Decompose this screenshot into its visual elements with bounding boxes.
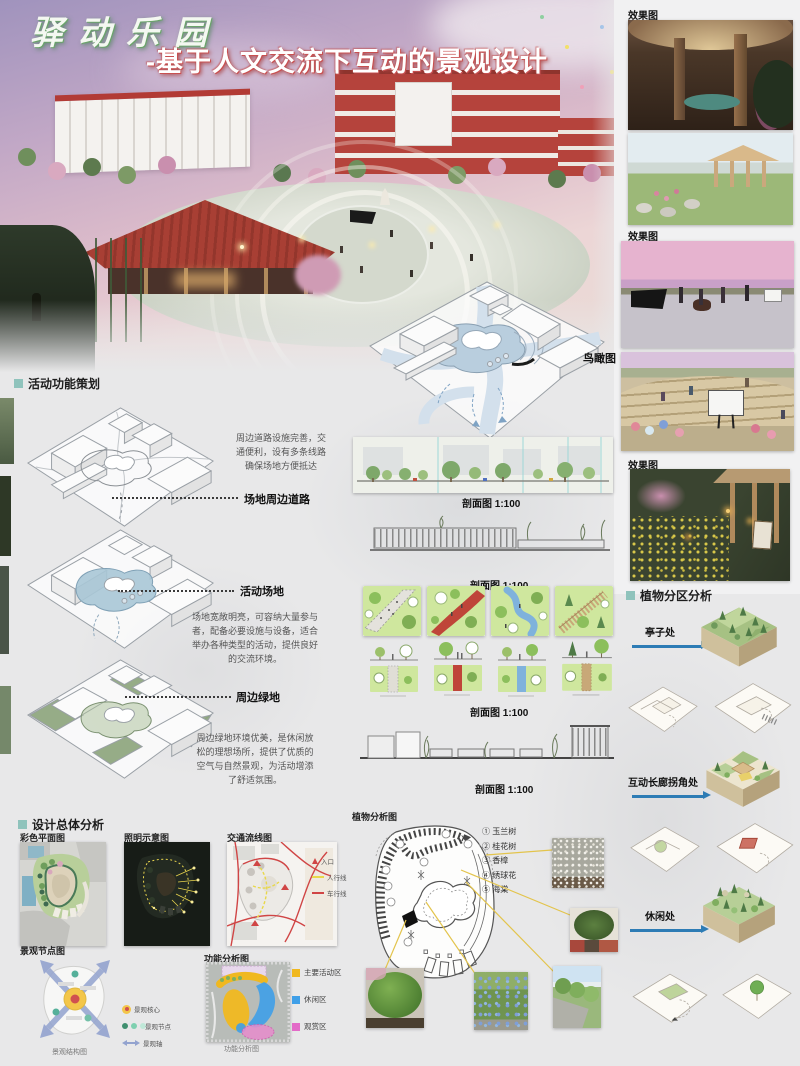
blossom-tree	[295, 255, 341, 295]
confetti-dots	[540, 15, 544, 19]
path-panel-stream	[491, 586, 549, 636]
photo-osmanthus-tree	[570, 908, 618, 952]
lamp-lights	[240, 245, 244, 249]
tree-row	[18, 148, 36, 166]
planting-detail-pair	[494, 640, 550, 700]
plant-list-item: ① 玉兰树	[482, 826, 516, 838]
building-tower-white	[395, 82, 452, 146]
terrain-model-pavilion-area	[698, 604, 780, 670]
arrow-icon	[630, 929, 702, 932]
street-trees	[555, 978, 571, 994]
planting-detail-pair	[558, 636, 616, 700]
function-legend-row: 休闲区	[292, 994, 342, 1005]
function-legend: 主要活动区 休闲区 观赏区	[292, 967, 342, 1032]
zone-label-leisure: 休闲处	[645, 908, 675, 923]
photo-magnolia-trees	[552, 838, 604, 888]
path-panel-stone	[363, 586, 421, 636]
pavilion-glow	[175, 272, 235, 288]
render-photo-amphitheater	[621, 352, 794, 451]
sitting-people	[661, 392, 665, 401]
arrow-icon	[632, 645, 702, 648]
node-map-caption: 景观结构图	[52, 1047, 87, 1057]
axon-diagram-green-space	[22, 652, 219, 786]
activity-heading: 活动功能策划	[14, 375, 100, 392]
activity-desc-3: 周边绿地环境优美，是休闲放松的理想场所，提供了优质的空气与自然景观，为活动增添了…	[195, 732, 315, 788]
render-photo-night-pavilion	[628, 20, 793, 130]
birdseye-label: 鸟瞰图	[583, 350, 616, 366]
render-photo-evening-garden	[630, 469, 790, 581]
path-panel-red-track	[427, 586, 485, 636]
plant-list-item: ② 桂花树	[482, 841, 516, 853]
plant-list: ① 玉兰树 ② 桂花树 ③ 香樟 ④ 绣球花 ⑤ 海棠	[482, 826, 516, 896]
activity-label-2: 活动场地	[240, 583, 284, 599]
yellow-flower-field	[630, 516, 729, 581]
function-map-caption: 功能分析图	[224, 1044, 259, 1054]
function-legend-row: 观赏区	[292, 1021, 342, 1032]
activity-zone-swatch-icon	[292, 969, 300, 977]
traffic-legend-row: 车行线	[312, 888, 347, 898]
landscape-node-diagram	[26, 954, 126, 1046]
render-photo-day-pavilion	[628, 133, 793, 225]
plant-zone-heading-label: 植物分区分析	[640, 587, 712, 604]
flower-dots	[654, 191, 659, 196]
lighting-plan	[124, 842, 210, 946]
function-analysis-map	[206, 962, 290, 1042]
pedestrian-line-icon	[312, 876, 324, 878]
garden-stones	[636, 203, 652, 213]
activity-label-3: 周边绿地	[236, 689, 280, 705]
blossom-patch	[636, 479, 686, 513]
node-legend: 景观核心 景观节点 景观轴	[122, 1004, 171, 1048]
line-section-buildings	[358, 718, 616, 766]
section-label-3: 剖面图 1:100	[470, 704, 528, 719]
pavilion-column	[674, 38, 685, 120]
zone-label-corridor: 互动长廊拐角处	[628, 774, 698, 789]
node-legend-row: 景观核心	[122, 1004, 171, 1014]
viewing-zone-swatch-icon	[292, 1023, 300, 1031]
section-label-4: 剖面图 1:100	[475, 781, 533, 796]
planting-detail-pair	[430, 638, 486, 700]
edge-photo-sliver	[0, 566, 9, 654]
poster-subtitle: -基于人文交流下互动的景观设计	[146, 40, 548, 79]
traffic-legend-label: 入口	[321, 856, 334, 866]
function-legend-label: 休闲区	[304, 994, 327, 1005]
zone-label-pavilion: 亭子处	[645, 624, 675, 639]
node-legend-row: 景观节点	[122, 1021, 171, 1031]
drum-set	[693, 299, 711, 311]
plan-axon-diagram	[712, 678, 794, 740]
piano	[631, 289, 667, 309]
traffic-legend-row: 入口	[312, 856, 347, 866]
terrain-model-leisure-area	[700, 878, 778, 952]
pink-accent	[366, 968, 386, 980]
vehicle-line-icon	[312, 892, 324, 894]
function-legend-label: 观赏区	[304, 1021, 327, 1032]
connector-line	[118, 590, 234, 592]
pavilion-posts	[714, 161, 774, 187]
traffic-legend-row: 人行线	[312, 872, 347, 882]
activity-heading-label: 活动功能策划	[28, 375, 100, 392]
presentation-board: 驿动乐园 -基于人文交流下互动的景观设计 效果图 效果图 效果图	[0, 0, 800, 1066]
traffic-legend: 入口 人行线 车行线	[312, 856, 347, 898]
roadway	[553, 997, 589, 1028]
soil-strip	[366, 1018, 424, 1028]
school-building-white	[55, 89, 250, 174]
plant-list-item: ⑤ 海棠	[482, 884, 516, 896]
section-marker-icon	[14, 379, 23, 388]
leisure-zone-swatch-icon	[292, 996, 300, 1004]
node-legend-row: 景观轴	[122, 1038, 171, 1048]
activity-label-1: 场地周边道路	[244, 491, 310, 507]
traffic-legend-label: 人行线	[327, 872, 347, 882]
pavilion-column	[734, 34, 747, 126]
node-legend-label: 景观轴	[143, 1038, 163, 1048]
easel-tripod	[717, 415, 734, 429]
planting-detail-pair	[366, 640, 422, 700]
plan-axon-diagram	[714, 820, 796, 878]
connector-line	[125, 696, 231, 698]
plant-zone-heading: 植物分区分析	[626, 587, 712, 604]
arrow-icon	[632, 795, 704, 798]
plant-list-item: ④ 绣球花	[482, 870, 516, 882]
terrain-model-corridor-corner	[703, 748, 783, 810]
flower-bush	[753, 60, 793, 128]
core-node-icon	[122, 1005, 131, 1014]
photo-round-shrub	[366, 968, 424, 1028]
function-legend-label: 主要活动区	[304, 967, 342, 978]
pond	[684, 94, 740, 110]
node-dots-icon	[122, 1023, 128, 1029]
section-marker-icon	[626, 591, 635, 600]
tree-canopy	[574, 910, 614, 940]
axis-arrow-icon	[122, 1039, 140, 1047]
node-legend-label: 景观核心	[134, 1004, 160, 1014]
pavilion-roof	[713, 469, 790, 483]
warm-lights	[726, 509, 730, 513]
edge-photo-sliver	[0, 398, 14, 464]
plan-axon-diagram	[628, 824, 702, 876]
path-panel-boardwalk	[555, 586, 613, 636]
menu-board	[752, 520, 773, 549]
entrance-marker-icon	[312, 858, 318, 864]
plan-axon-diagram	[626, 681, 700, 739]
color-master-plan	[20, 842, 106, 946]
photo-hydrangea-shrub	[474, 972, 528, 1030]
connector-line	[112, 497, 238, 499]
rendered-section-strip	[353, 437, 613, 493]
pavilion-roof	[707, 145, 779, 161]
render-photo-music-plaza	[621, 241, 794, 348]
birdseye-axon-diagram	[362, 276, 612, 444]
line-section-pergola	[366, 514, 614, 558]
edge-photo-sliver	[0, 686, 11, 754]
plan-axon-diagram	[630, 971, 710, 1027]
section-label-1: 剖面图 1:100	[462, 495, 520, 510]
screen-board	[764, 289, 782, 302]
piano	[350, 210, 376, 224]
node-legend-label: 景观节点	[145, 1021, 171, 1031]
pavilion-dome	[628, 20, 793, 50]
axon-diagram-roads	[22, 402, 219, 532]
plant-list-item: ③ 香樟	[482, 855, 516, 867]
edge-photo-sliver	[0, 476, 11, 556]
musician-silhouettes	[679, 287, 683, 303]
section-marker-icon	[18, 820, 27, 829]
function-legend-row: 主要活动区	[292, 967, 342, 978]
activity-desc-1: 周边道路设施完善，交通便利，设有多条线路确保场地方便抵达	[235, 432, 327, 474]
plan-axon-diagram	[720, 970, 794, 1024]
traffic-legend-label: 车行线	[327, 888, 347, 898]
photo-camphor-street	[553, 966, 601, 1028]
street-stalls	[570, 940, 618, 952]
flower-cluster-pink	[631, 422, 640, 431]
whiteboard-easel	[708, 390, 744, 416]
